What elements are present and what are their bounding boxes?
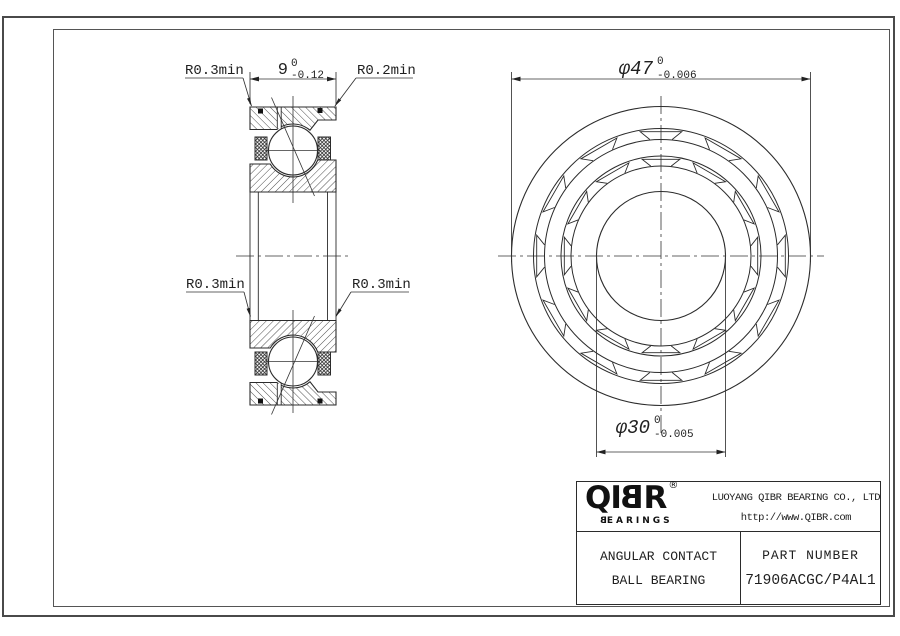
logo-letter: R — [644, 483, 667, 514]
width-dim-tol-lower: -0.12 — [291, 70, 324, 82]
part-number-cell: PART NUMBER 71906ACGC/P4AL1 — [740, 532, 880, 605]
callout-top-right: R0.2min — [357, 63, 416, 79]
brand-logo-subtitle: BEARINGS — [597, 516, 673, 526]
logo-letter: Q — [585, 483, 610, 514]
logo-sub-letter-mirrored-b: B — [597, 516, 607, 526]
registered-trademark-icon: ® — [668, 481, 677, 514]
product-line1: ANGULAR CONTACT — [600, 549, 717, 564]
callout-mid-left: R0.3min — [186, 277, 245, 293]
product-description: ANGULAR CONTACT BALL BEARING — [577, 532, 740, 605]
logo-sub-rest: EARINGS — [607, 516, 673, 526]
title-block: QIBR® BEARINGS LUOYANG QIBR BEARING CO.,… — [576, 481, 881, 605]
width-dim-value: 9 — [278, 61, 288, 80]
company-name: LUOYANG QIBR BEARING CO., LTD — [712, 489, 880, 509]
title-block-header-row: QIBR® BEARINGS LUOYANG QIBR BEARING CO.,… — [577, 482, 880, 532]
part-number-value: 71906ACGC/P4AL1 — [745, 573, 876, 589]
bore-dia-tol-lower: -0.005 — [654, 429, 694, 441]
part-number-label: PART NUMBER — [762, 548, 859, 563]
front-view — [498, 96, 824, 434]
brand-logo: QIBR® BEARINGS — [577, 482, 712, 531]
bore-dia-tol-upper: 0 — [654, 415, 661, 427]
product-line2: BALL BEARING — [612, 573, 706, 588]
company-info: LUOYANG QIBR BEARING CO., LTD http://www… — [712, 482, 880, 531]
section-view — [236, 96, 350, 415]
drawing-sheet: 9 0 -0.12 R0.3min R0.2min R0.3min R0.3mi… — [0, 0, 900, 636]
outer-dia-value: φ47 — [619, 58, 654, 80]
outer-dia-tol-upper: 0 — [657, 56, 664, 68]
title-block-body-row: ANGULAR CONTACT BALL BEARING PART NUMBER… — [577, 532, 880, 605]
bore-dia-value: φ30 — [616, 417, 650, 439]
logo-letter: I — [610, 483, 621, 514]
callout-top-left: R0.3min — [185, 63, 244, 79]
width-dim-tol-upper: 0 — [291, 58, 298, 70]
logo-letter-mirrored-b: B — [621, 483, 644, 514]
callout-mid-right: R0.3min — [352, 277, 411, 293]
brand-logo-word: QIBR® — [585, 483, 677, 514]
company-website: http://www.QIBR.com — [712, 509, 880, 529]
outer-dia-tol-lower: -0.006 — [657, 70, 697, 82]
